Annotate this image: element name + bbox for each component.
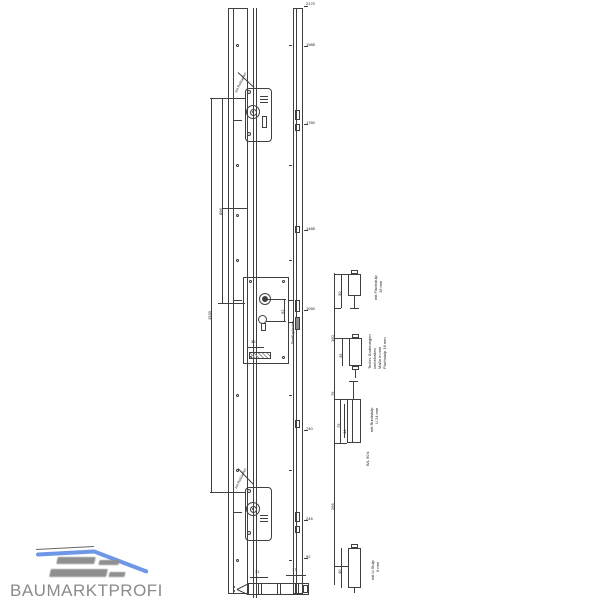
screw-hole xyxy=(282,280,285,283)
ruler-label: 1985 xyxy=(306,43,315,47)
detail-section-g2 xyxy=(349,338,362,366)
cutout xyxy=(295,226,300,233)
detail-stem xyxy=(354,588,355,593)
tick-mark xyxy=(289,470,292,471)
ruler-label: 245 xyxy=(306,517,313,521)
extension-line xyxy=(266,321,286,322)
tick-mark xyxy=(289,560,292,561)
detail-inner-line xyxy=(352,399,353,443)
logo-smudge xyxy=(98,560,119,565)
tick-mark xyxy=(289,395,292,396)
rail-mark xyxy=(234,300,242,301)
roller-cam-pin xyxy=(252,111,254,113)
spring-mark xyxy=(260,518,268,519)
head-joint xyxy=(247,583,248,595)
bolt-cutout xyxy=(295,317,300,330)
dimension-label: 92 xyxy=(281,310,285,314)
detail-stem xyxy=(355,370,356,378)
head-segment xyxy=(261,583,262,595)
connector-line xyxy=(334,274,348,275)
case-inner-line xyxy=(247,277,248,364)
connector-line xyxy=(334,308,341,309)
logo-smudge xyxy=(49,569,108,577)
extension-line xyxy=(210,492,245,493)
detail-section-g4 xyxy=(348,548,361,588)
screw-hole xyxy=(236,259,239,262)
cylinder-tail xyxy=(261,323,266,331)
detail-step xyxy=(352,334,359,338)
ruler-label: 2170 xyxy=(306,2,315,6)
connector-line xyxy=(334,566,348,567)
detail-base xyxy=(350,308,359,309)
dimension-label: 31 xyxy=(255,570,259,574)
screw-hole xyxy=(247,90,251,94)
detail-label: 6 mm xyxy=(376,562,380,572)
dimension-label: 896 xyxy=(219,208,223,215)
brand-name: BAUMARKTPROFI xyxy=(10,581,163,600)
dimension-label: 44 xyxy=(343,430,347,434)
spring-mark xyxy=(260,102,268,103)
head-end-cap xyxy=(303,585,308,593)
tick-mark xyxy=(289,45,292,46)
ruler-label: 92 xyxy=(306,555,310,559)
detail-label: B/L 90 li. xyxy=(366,451,370,466)
ruler-tick xyxy=(304,6,308,7)
connector-line xyxy=(334,338,349,339)
dimension-line xyxy=(342,338,343,366)
center-mark xyxy=(233,590,235,592)
dimension-label: 35 xyxy=(251,340,255,344)
connector-line xyxy=(334,443,347,444)
head-segment xyxy=(280,583,281,595)
screw-hole xyxy=(236,164,239,167)
tick-mark xyxy=(289,165,292,166)
dimension-label: 1933 xyxy=(208,311,212,320)
screw-hole xyxy=(249,280,252,283)
extension-line xyxy=(222,208,248,209)
extension-line xyxy=(210,98,245,99)
screw-hole xyxy=(236,394,239,397)
detail-label: Flachstulp 16 mm xyxy=(383,337,387,369)
head-segment xyxy=(277,583,278,595)
guide-slot xyxy=(262,116,267,128)
detail-base xyxy=(349,381,358,382)
product-drawing: mit Rollzapfen 1933 896 92 35 Profilzyli… xyxy=(0,0,600,600)
detail-label: 16 mm xyxy=(379,281,383,293)
faceplate-inner-line xyxy=(233,8,234,594)
rail-mark xyxy=(234,512,242,513)
screw-hole xyxy=(247,531,251,535)
detail-spine-line xyxy=(334,273,335,585)
spine-dim-label: 295 xyxy=(331,503,335,510)
dimension-label: 35 xyxy=(339,354,343,358)
spring-mark xyxy=(260,99,268,100)
logo-smudge xyxy=(108,572,125,577)
roller-cam-pin xyxy=(252,508,254,510)
logo-smudge xyxy=(56,557,95,564)
screw-hole xyxy=(282,356,285,359)
logo-roof-blue-left xyxy=(36,549,96,556)
detail-section-g1 xyxy=(348,274,361,296)
dimension-line xyxy=(250,577,268,578)
rail-mark xyxy=(234,120,242,121)
cutout xyxy=(295,110,300,120)
dimension-label: 75 xyxy=(337,424,341,428)
screw-hole xyxy=(236,214,239,217)
dimension-line xyxy=(222,98,223,303)
extension-line xyxy=(218,303,245,304)
screw-hole xyxy=(236,44,239,47)
screw-hole xyxy=(236,559,239,562)
detail-step xyxy=(351,544,358,548)
hatch-block xyxy=(249,352,271,359)
spring-mark xyxy=(260,521,268,522)
screw-hole xyxy=(247,132,251,136)
dimension-line xyxy=(340,399,341,443)
ruler-label: 740 xyxy=(306,427,313,431)
latch-cutout xyxy=(295,300,300,312)
extension-line xyxy=(264,299,286,300)
dimension-label: 30 xyxy=(338,292,342,296)
tick-mark xyxy=(289,260,292,261)
spring-mark xyxy=(260,515,268,516)
detail-section-g3 xyxy=(347,399,361,443)
detail-stem xyxy=(353,382,354,399)
head-segment xyxy=(258,583,259,595)
dimension-label: 40 xyxy=(338,570,342,574)
ruler-label: 1050 xyxy=(306,307,315,311)
ruler-label: 1760 xyxy=(306,121,315,125)
cutout xyxy=(295,124,300,131)
screw-hole xyxy=(247,489,251,493)
cutout xyxy=(295,420,300,428)
dimension-line xyxy=(247,347,264,348)
connector-line xyxy=(334,399,347,400)
detail-step xyxy=(351,270,358,274)
ruler-label: 1485 xyxy=(306,227,315,231)
detail-label: U 24 mm xyxy=(375,408,379,424)
dimension-line xyxy=(211,98,212,492)
spine-dim-label: 75 xyxy=(331,392,335,396)
cutout xyxy=(295,526,300,533)
cutout xyxy=(295,512,300,522)
dimension-line xyxy=(341,548,342,588)
detail-stem xyxy=(354,296,355,308)
center-mark xyxy=(233,586,235,588)
spring-mark xyxy=(260,96,268,97)
